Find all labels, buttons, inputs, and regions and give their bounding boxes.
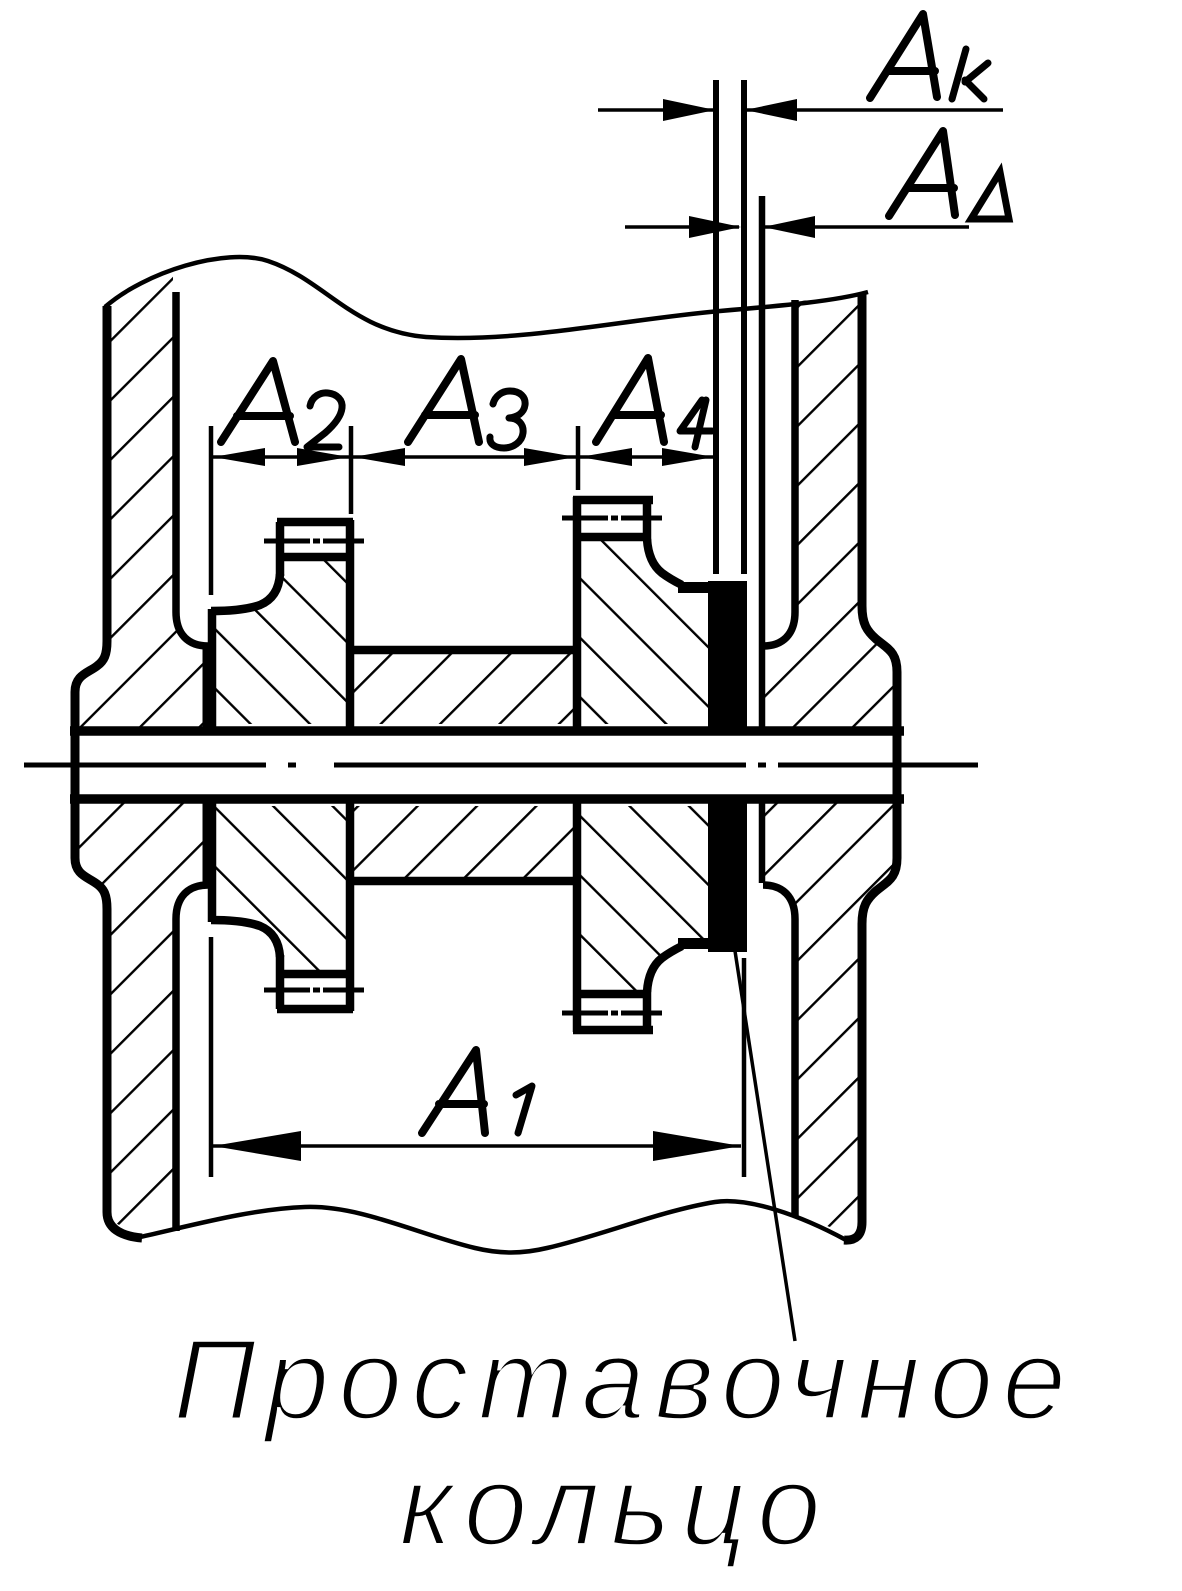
svg-text:Проставочное: Проставочное [173,1316,1075,1444]
svg-text:кольцо: кольцо [399,1442,831,1570]
